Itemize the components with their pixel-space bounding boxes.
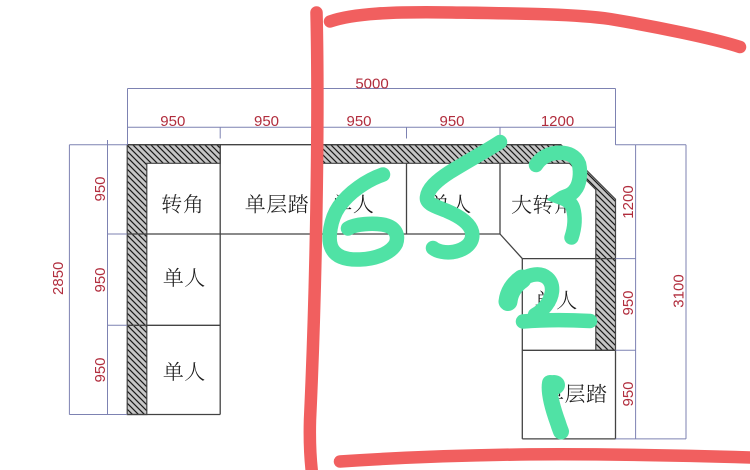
svg-text:950: 950 — [620, 290, 637, 315]
svg-text:950: 950 — [92, 267, 109, 292]
svg-text:950: 950 — [620, 381, 637, 406]
svg-text:1200: 1200 — [541, 113, 574, 130]
svg-text:950: 950 — [346, 113, 371, 130]
svg-text:950: 950 — [160, 113, 185, 130]
svg-text:2850: 2850 — [50, 262, 67, 295]
svg-text:3100: 3100 — [671, 274, 688, 307]
svg-text:5000: 5000 — [355, 75, 388, 92]
svg-text:950: 950 — [92, 357, 109, 382]
svg-text:1200: 1200 — [620, 185, 637, 218]
svg-text:950: 950 — [254, 113, 279, 130]
svg-text:950: 950 — [439, 113, 464, 130]
svg-text:950: 950 — [92, 176, 109, 201]
